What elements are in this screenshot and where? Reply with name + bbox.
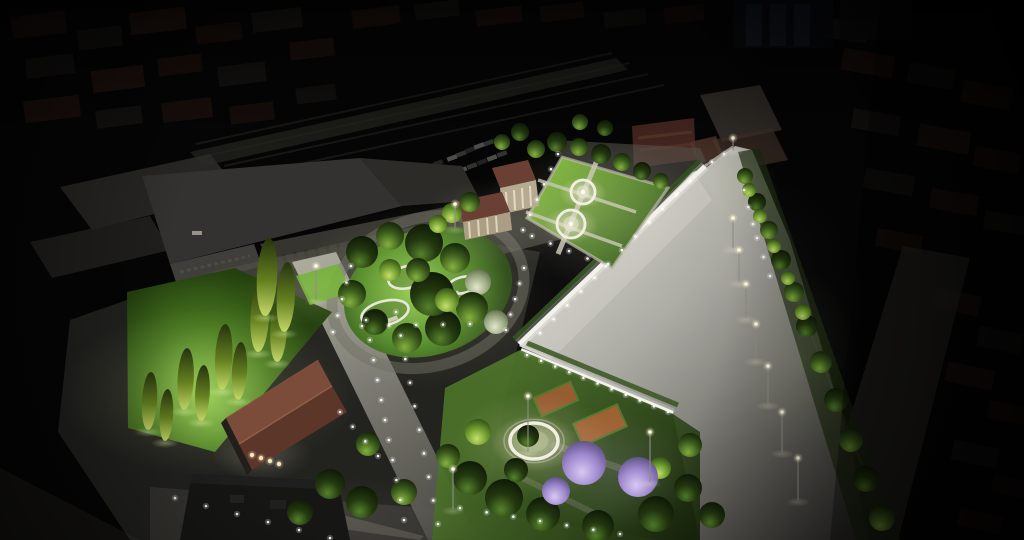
rendering-stage	[0, 0, 1024, 540]
vignette-overlay	[0, 0, 1024, 540]
night-park-rendering	[0, 0, 1024, 540]
